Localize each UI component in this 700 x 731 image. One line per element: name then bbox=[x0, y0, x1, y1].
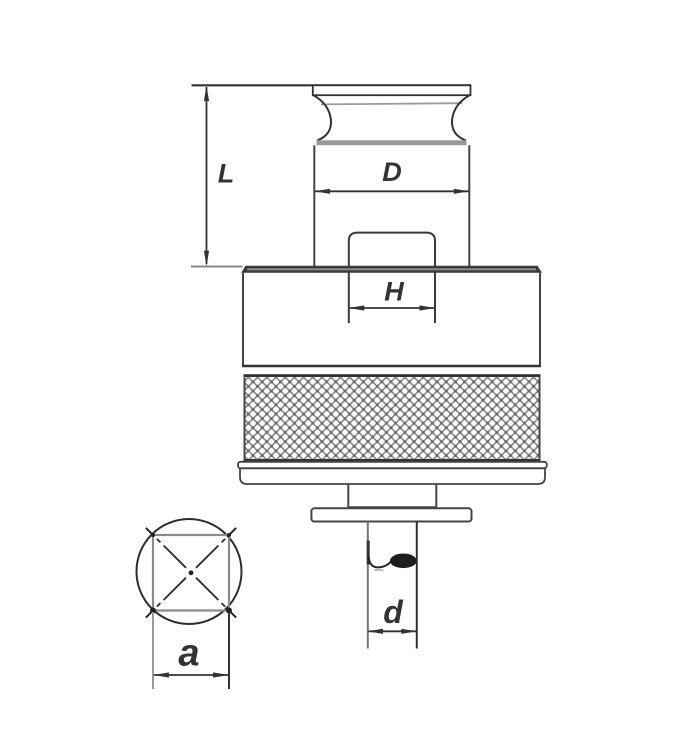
svg-text:a: a bbox=[178, 633, 199, 675]
svg-text:L: L bbox=[218, 159, 235, 189]
svg-text:d: d bbox=[383, 594, 404, 630]
svg-text:H: H bbox=[384, 277, 404, 307]
svg-text:D: D bbox=[382, 157, 402, 187]
